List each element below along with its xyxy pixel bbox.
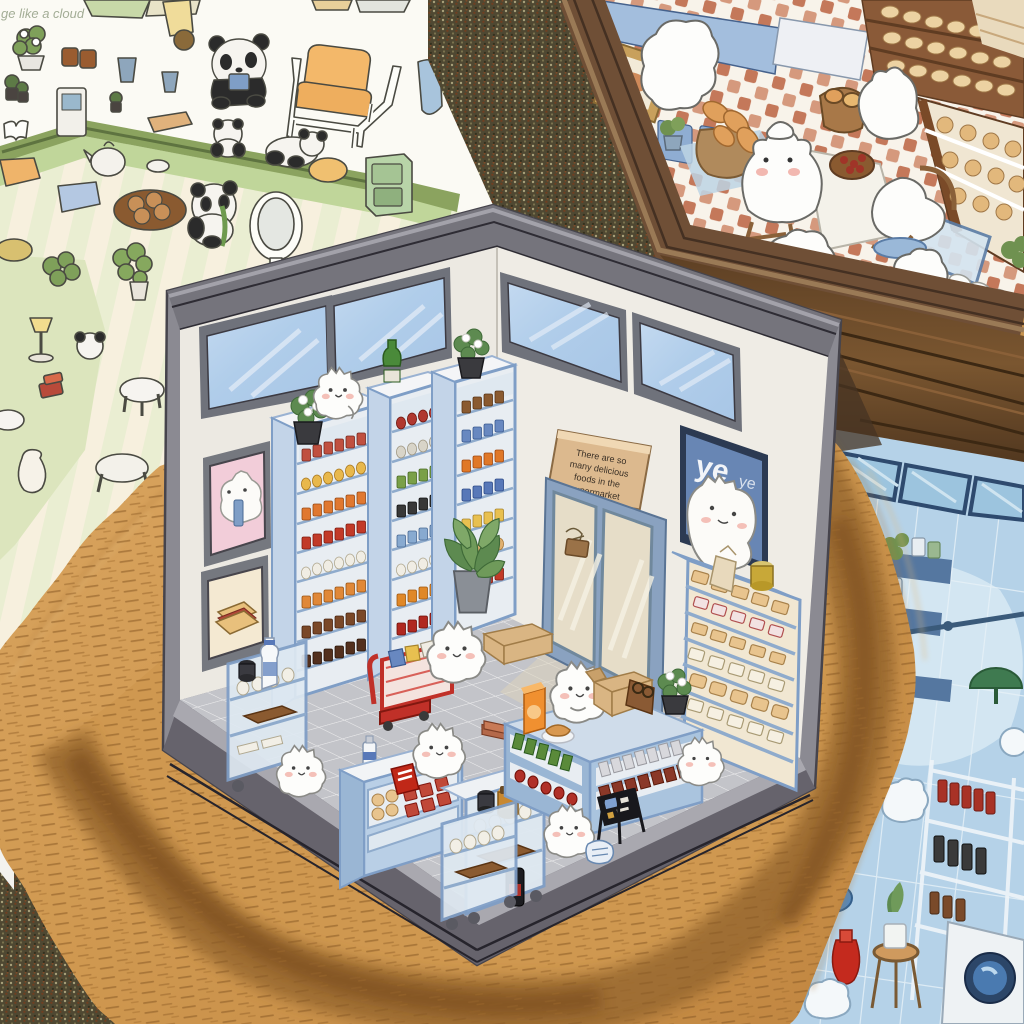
svg-text:ge like a cloud: ge like a cloud [1, 6, 85, 21]
